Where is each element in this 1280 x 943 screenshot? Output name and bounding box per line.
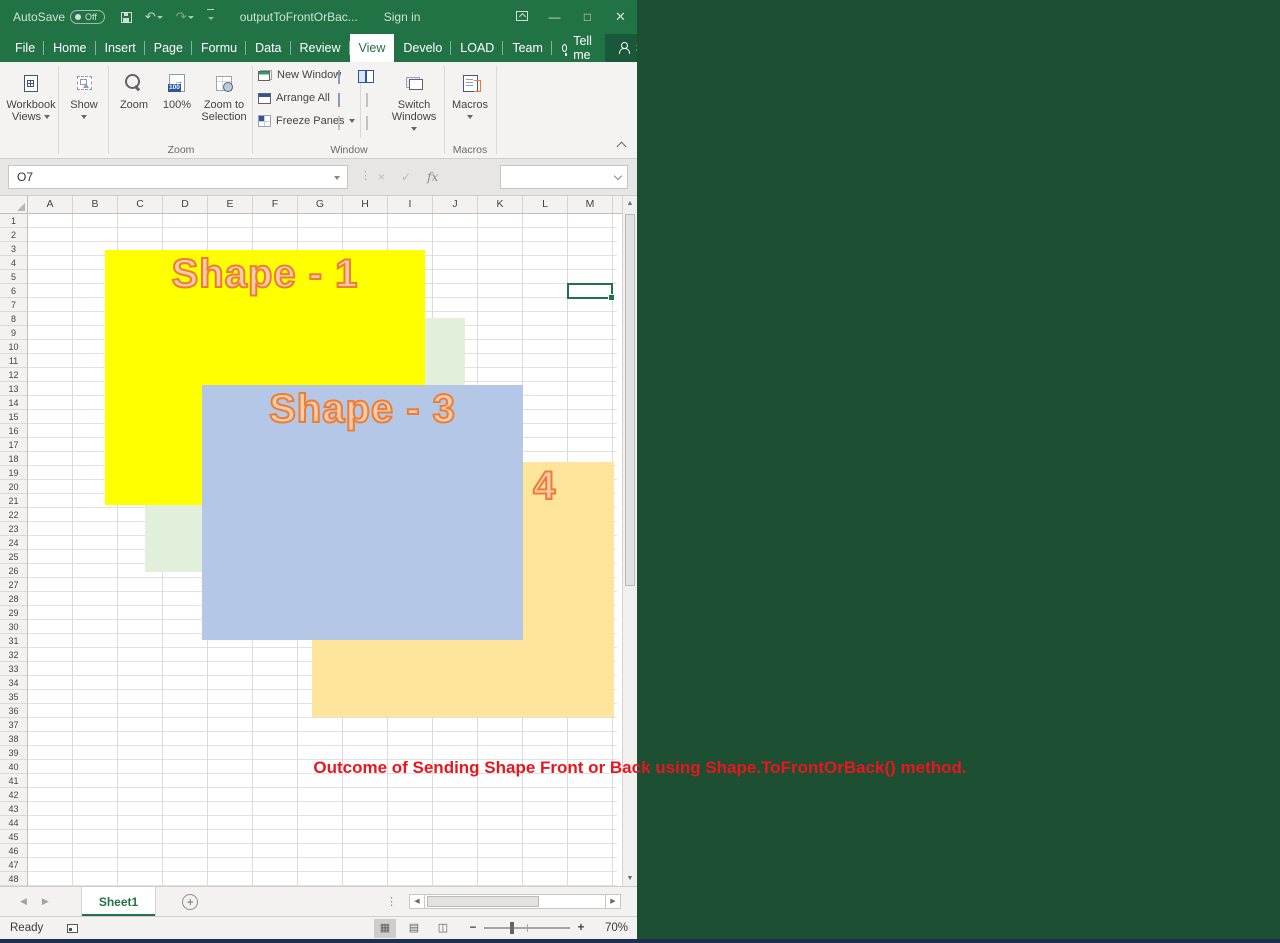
ribbon-tab-row: FileHomeInsertPage LFormuDataReviewViewD… — [0, 34, 637, 62]
switch-windows-button[interactable]: SwitchWindows — [388, 67, 440, 135]
formula-bar-handle[interactable]: ⋮ — [360, 169, 371, 182]
expand-formula-bar-icon[interactable] — [614, 172, 622, 180]
person-icon — [618, 42, 630, 54]
zoom-slider[interactable]: − + — [466, 922, 588, 934]
row-header-1[interactable]: 1 — [0, 214, 27, 228]
ribbon-tab-review[interactable]: Review — [291, 34, 350, 62]
macros-icon — [463, 75, 478, 92]
macro-record-icon[interactable] — [67, 924, 78, 933]
autosave-label: AutoSave — [13, 10, 65, 24]
next-sheet-icon[interactable]: ▶ — [42, 896, 49, 907]
row-header-20[interactable]: 20 — [0, 480, 27, 494]
status-bar: Ready ▦ ▤ ◫ − + 70% — [0, 916, 637, 939]
ribbon-tab-formu[interactable]: Formu — [192, 34, 246, 62]
shape-label: Shape - 1 — [105, 250, 425, 297]
row-header-3[interactable]: 3 — [0, 242, 27, 256]
shape-label: Shape - 3 — [202, 385, 523, 432]
insert-function-icon[interactable]: fx — [427, 170, 438, 184]
macros-button[interactable]: Macros — [448, 67, 492, 123]
row-headers: 1234567891011121314151617181920212223242… — [0, 214, 28, 886]
row-header-16[interactable]: 16 — [0, 424, 27, 438]
zoom-to-selection-button[interactable]: Zoom toSelection — [198, 67, 250, 123]
status-ready: Ready — [10, 922, 43, 934]
new-window-icon — [258, 70, 272, 81]
ribbon-tab-home[interactable]: Home — [44, 34, 95, 62]
scroll-right-icon[interactable]: ▶ — [605, 894, 621, 909]
row-header-14[interactable]: 14 — [0, 396, 27, 410]
synchronous-scrolling-button[interactable] — [366, 94, 368, 106]
row-header-28[interactable]: 28 — [0, 592, 27, 606]
column-header-d[interactable]: D — [163, 196, 208, 213]
row-header-31[interactable]: 31 — [0, 634, 27, 648]
zoom-percent: 70% — [592, 922, 628, 934]
undo-button[interactable]: ↶ — [145, 9, 163, 25]
row-header-36[interactable]: 36 — [0, 704, 27, 718]
row-header-42[interactable]: 42 — [0, 788, 27, 802]
sheet-tab-sheet1[interactable]: Sheet1 — [81, 887, 156, 916]
formula-input[interactable] — [500, 165, 628, 189]
row-header-21[interactable]: 21 — [0, 494, 27, 508]
row-header-18[interactable]: 18 — [0, 452, 27, 466]
row-header-37[interactable]: 37 — [0, 718, 27, 732]
row-header-46[interactable]: 46 — [0, 844, 27, 858]
row-header-10[interactable]: 10 — [0, 340, 27, 354]
zoom-slider-thumb[interactable] — [510, 922, 514, 934]
zoom-100-icon: 100 — [169, 74, 185, 92]
autosave-pill: Off — [70, 10, 105, 24]
taskbar-edge — [0, 939, 1280, 943]
row-header-4[interactable]: 4 — [0, 256, 27, 270]
row-header-17[interactable]: 17 — [0, 438, 27, 452]
column-header-e[interactable]: E — [208, 196, 253, 213]
scroll-up-icon[interactable]: ▲ — [623, 196, 637, 211]
zoom-100-button[interactable]: 100 100% — [157, 67, 197, 111]
row-header-26[interactable]: 26 — [0, 564, 27, 578]
workbook-views-icon — [24, 75, 38, 92]
window-title: outputToFrontOrBac... — [240, 10, 358, 24]
row-header-43[interactable]: 43 — [0, 802, 27, 816]
enter-icon[interactable]: ✓ — [401, 170, 411, 184]
lightbulb-icon — [562, 44, 567, 52]
horizontal-scroll-thumb[interactable] — [427, 896, 539, 907]
select-all-corner[interactable] — [0, 196, 28, 214]
page-break-view-button[interactable]: ◫ — [432, 919, 454, 938]
title-bar: AutoSave Off ↶ ↷ outputToFrontOrBac... S… — [0, 0, 637, 34]
vertical-scrollbar[interactable]: ▲ ▼ — [622, 196, 637, 886]
annotation-caption: Outcome of Sending Shape Front or Back u… — [0, 758, 1280, 778]
row-header-25[interactable]: 25 — [0, 550, 27, 564]
column-header-a[interactable]: A — [28, 196, 73, 213]
row-header-2[interactable]: 2 — [0, 228, 27, 242]
customize-qat-icon[interactable] — [207, 9, 214, 25]
row-header-38[interactable]: 38 — [0, 732, 27, 746]
column-header-c[interactable]: C — [118, 196, 163, 213]
row-header-47[interactable]: 47 — [0, 858, 27, 872]
split-button[interactable] — [338, 71, 340, 83]
row-header-48[interactable]: 48 — [0, 872, 27, 886]
arrange-all-button[interactable]: Arrange All — [258, 92, 330, 104]
row-header-12[interactable]: 12 — [0, 368, 27, 382]
row-header-32[interactable]: 32 — [0, 648, 27, 662]
tab-scroll-handle[interactable]: ⋮ — [386, 895, 397, 908]
zoom-out-button[interactable]: − — [466, 922, 480, 934]
scroll-left-icon[interactable]: ◀ — [409, 894, 425, 909]
cancel-icon[interactable]: × — [378, 170, 385, 184]
ribbon-tab-data[interactable]: Data — [246, 34, 290, 62]
name-box-dropdown-icon[interactable] — [334, 176, 340, 180]
column-header-l[interactable]: L — [523, 196, 568, 213]
zoom-button[interactable]: Zoom — [112, 67, 156, 111]
switch-windows-icon — [406, 77, 423, 90]
row-header-5[interactable]: 5 — [0, 270, 27, 284]
shape-3[interactable]: Shape - 3 — [202, 385, 523, 640]
row-header-9[interactable]: 9 — [0, 326, 27, 340]
arrange-all-icon — [258, 93, 271, 104]
collapse-ribbon-icon[interactable] — [617, 142, 627, 152]
unhide-button[interactable] — [338, 117, 340, 129]
zoom-to-selection-icon — [216, 76, 232, 91]
row-header-8[interactable]: 8 — [0, 312, 27, 326]
column-header-f[interactable]: F — [253, 196, 298, 213]
freeze-panes-button[interactable]: Freeze Panes — [258, 115, 355, 127]
new-sheet-button[interactable]: + — [182, 894, 198, 910]
column-header-b[interactable]: B — [73, 196, 118, 213]
show-button[interactable]: Show — [62, 67, 106, 123]
row-header-11[interactable]: 11 — [0, 354, 27, 368]
autosave-state: Off — [85, 12, 97, 22]
row-header-19[interactable]: 19 — [0, 466, 27, 480]
maximize-button[interactable]: □ — [571, 10, 604, 24]
ribbon: WorkbookViews Show Zoom 100 100% Zoom to… — [0, 62, 637, 159]
new-window-button[interactable]: New Window — [258, 69, 341, 81]
ribbon-tab-team[interactable]: Team — [503, 34, 552, 62]
desktop: AutoSave Off ↶ ↷ sampleToFrontOrBa... Si… — [0, 0, 1280, 943]
column-headers: ABCDEFGHIJKLM — [28, 196, 622, 214]
column-header-m[interactable]: M — [568, 196, 613, 213]
redo-button[interactable]: ↷ — [176, 9, 194, 25]
row-header-7[interactable]: 7 — [0, 298, 27, 312]
row-header-35[interactable]: 35 — [0, 690, 27, 704]
column-header-h[interactable]: H — [343, 196, 388, 213]
row-header-22[interactable]: 22 — [0, 508, 27, 522]
column-header-j[interactable]: J — [433, 196, 478, 213]
column-header-i[interactable]: I — [388, 196, 433, 213]
group-label-macros: Macros — [448, 144, 492, 156]
autosave-dot-icon — [75, 14, 81, 20]
row-header-30[interactable]: 30 — [0, 620, 27, 634]
group-label-window: Window — [258, 144, 440, 156]
prev-sheet-icon[interactable]: ◀ — [20, 896, 27, 907]
ribbon-tab-view[interactable]: View — [350, 34, 395, 62]
row-header-23[interactable]: 23 — [0, 522, 27, 536]
quick-access-toolbar: ↶ ↷ — [121, 9, 214, 25]
ribbon-display-options-icon[interactable] — [505, 10, 538, 24]
sheet-tab-bar: ◀▶ Sheet1 + ⋮ ◀ ▶ — [0, 886, 637, 916]
freeze-panes-icon — [258, 115, 271, 127]
ribbon-tab-page-l[interactable]: Page L — [145, 34, 192, 62]
reset-window-position-button[interactable] — [366, 117, 368, 129]
ribbon-tab-load-t[interactable]: LOAD T — [451, 34, 503, 62]
row-header-13[interactable]: 13 — [0, 382, 27, 396]
row-header-34[interactable]: 34 — [0, 676, 27, 690]
save-icon[interactable] — [121, 12, 132, 23]
group-label-zoom: Zoom — [112, 144, 250, 156]
column-header-k[interactable]: K — [478, 196, 523, 213]
active-cell-selection[interactable] — [567, 283, 613, 299]
hide-button[interactable] — [338, 94, 340, 106]
ribbon-tab-insert[interactable]: Insert — [96, 34, 145, 62]
tell-me-box[interactable]: Tell me — [552, 34, 605, 62]
horizontal-scrollbar[interactable]: ◀ ▶ — [409, 893, 621, 910]
magnifier-icon — [125, 74, 143, 92]
vertical-scroll-thumb[interactable] — [625, 214, 635, 586]
workbook-views-button[interactable]: WorkbookViews — [6, 67, 56, 123]
normal-view-button[interactable]: ▦ — [374, 919, 396, 938]
column-header-g[interactable]: G — [298, 196, 343, 213]
show-icon — [77, 76, 92, 90]
row-header-29[interactable]: 29 — [0, 606, 27, 620]
scroll-down-icon[interactable]: ▼ — [623, 871, 637, 886]
ribbon-tab-develo[interactable]: Develo — [394, 34, 451, 62]
close-button[interactable]: ✕ — [604, 9, 637, 25]
page-layout-view-button[interactable]: ▤ — [403, 919, 425, 938]
minimize-button[interactable]: — — [538, 10, 571, 24]
autosave-toggle[interactable]: AutoSave Off — [13, 10, 105, 24]
row-header-6[interactable]: 6 — [0, 284, 27, 298]
formula-bar-row: O7 ⋮ × ✓ fx — [0, 159, 637, 196]
name-box[interactable]: O7 — [8, 165, 348, 189]
row-header-27[interactable]: 27 — [0, 578, 27, 592]
zoom-in-button[interactable]: + — [574, 922, 588, 934]
share-button[interactable]: Share — [605, 34, 637, 62]
row-header-33[interactable]: 33 — [0, 662, 27, 676]
name-box-value: O7 — [17, 170, 33, 184]
row-header-44[interactable]: 44 — [0, 816, 27, 830]
row-header-24[interactable]: 24 — [0, 536, 27, 550]
row-header-15[interactable]: 15 — [0, 410, 27, 424]
ribbon-tab-file[interactable]: File — [6, 34, 44, 62]
row-header-45[interactable]: 45 — [0, 830, 27, 844]
sign-in-link[interactable]: Sign in — [384, 10, 421, 24]
